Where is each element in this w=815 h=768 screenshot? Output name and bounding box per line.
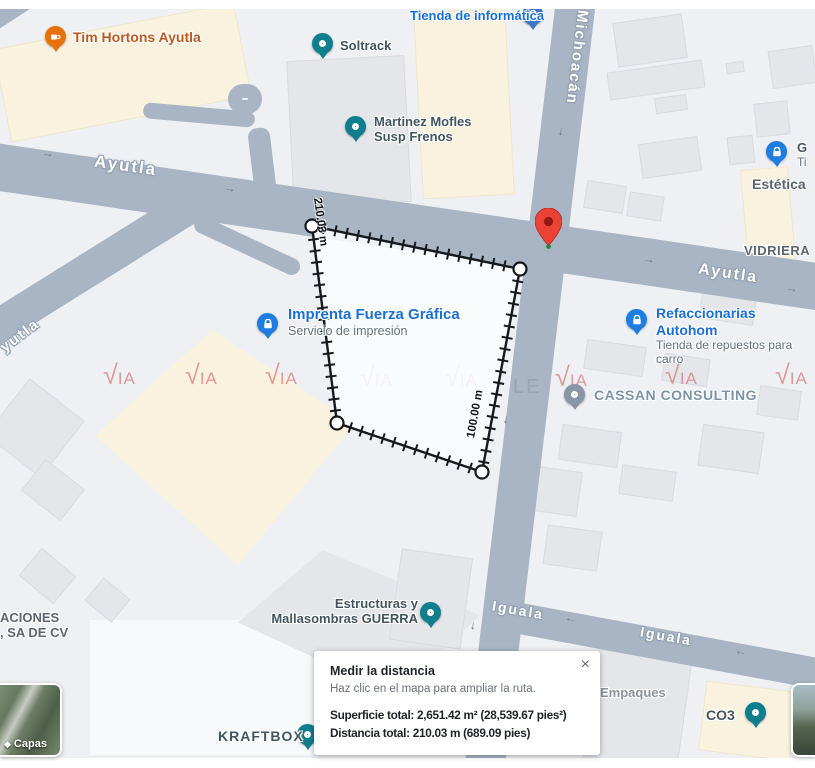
poi-label-soltrack[interactable]: Soltrack	[340, 38, 391, 53]
donut-icon	[319, 40, 326, 47]
building	[618, 464, 677, 501]
building	[583, 339, 647, 377]
poi-label-tim-hortons[interactable]: Tim Hortons Ayutla	[73, 29, 201, 46]
oneway-arrow-icon: ←	[734, 643, 748, 659]
dialog-area-total: Superficie total: 2,651.42 m² (28,539.67…	[330, 708, 586, 722]
oneway-arrow-icon: →	[642, 251, 656, 267]
building	[697, 424, 764, 474]
poi-pin-estructuras[interactable]	[420, 602, 441, 623]
dialog-hint: Haz clic en el mapa para ampliar la ruta…	[330, 683, 586, 695]
building	[753, 100, 790, 137]
poi-pin-tim-hortons cafe-icon[interactable]	[45, 26, 66, 47]
poi-label-cassan[interactable]: CASSAN CONSULTING	[594, 387, 757, 404]
lock-icon	[632, 315, 642, 325]
donut-icon	[571, 391, 578, 398]
close-icon[interactable]: ×	[581, 657, 590, 673]
measurement-vertex[interactable]	[476, 466, 489, 479]
poi-label-line: Imprenta Fuerza Gráfica	[288, 306, 460, 324]
poi-pin-martinez[interactable]	[345, 116, 366, 137]
building	[654, 94, 688, 114]
streetview-thumbnail[interactable]	[791, 683, 815, 757]
building	[727, 135, 756, 166]
building	[768, 45, 815, 89]
building	[542, 524, 602, 571]
poi-pin-estetica-lock[interactable]	[766, 141, 787, 162]
watermark: √IA	[103, 360, 136, 391]
oneway-arrow-icon: →	[223, 180, 237, 196]
poi-label-line: G	[797, 140, 807, 155]
poi-sublabel: Servicio de impresión	[288, 324, 460, 339]
poi-label-kraftbox[interactable]: KRAFTBOX	[218, 728, 304, 745]
poi-pin-imprenta-lock[interactable]	[257, 313, 278, 334]
donut-icon	[304, 731, 311, 738]
poi-label-empaques: Empaques	[600, 685, 666, 700]
building	[19, 548, 77, 605]
building	[583, 180, 627, 214]
poi-label-imprenta[interactable]: Imprenta Fuerza Gráfica Servicio de impr…	[288, 306, 460, 338]
poi-label-estetica: Estética	[752, 176, 806, 193]
dialog-title: Medir la distancia	[330, 664, 586, 678]
poi-label-line: Estructuras y	[268, 596, 418, 611]
layers-control[interactable]: ◆Capas	[0, 683, 62, 757]
building	[638, 136, 702, 179]
poi-label-line: Susp Frenos	[374, 129, 472, 144]
building	[84, 577, 130, 622]
donut-icon	[752, 709, 759, 716]
measure-distance-dialog: × Medir la distancia Haz clic en el mapa…	[314, 651, 600, 755]
donut-icon	[352, 123, 359, 130]
building	[626, 191, 664, 221]
poi-label-line: , SA DE CV	[0, 625, 68, 640]
watermark: √IA	[185, 360, 218, 391]
oneway-arrow-icon: →	[41, 145, 55, 161]
red-map-pin[interactable]	[535, 208, 562, 249]
poi-label-line: Ti	[797, 155, 807, 169]
building	[558, 424, 622, 468]
poi-label-refaccionarias[interactable]: Refaccionarias Autohom Tienda de repuest…	[656, 305, 815, 366]
poi-label-martinez[interactable]: Martinez Mofles Susp Frenos	[374, 114, 472, 145]
poi-label-line: Refaccionarias Autohom	[656, 305, 815, 338]
map-area-cream	[413, 8, 515, 200]
poi-label-co3[interactable]: CO3	[706, 707, 735, 724]
poi-label-estructuras[interactable]: Estructuras y Mallasombras GUERRA	[268, 596, 418, 627]
bottom-margin	[0, 758, 815, 768]
cafe-icon	[50, 32, 61, 42]
top-margin	[0, 0, 815, 9]
poi-pin-co3[interactable]	[745, 702, 766, 723]
building	[725, 61, 744, 74]
poi-label-line: Martinez Mofles	[374, 114, 472, 129]
lock-icon	[772, 147, 782, 157]
poi-label-line: Mallasombras GUERRA	[268, 611, 418, 626]
watermark-gray: LE	[513, 376, 541, 399]
poi-label-estetica-g[interactable]: G Ti	[797, 140, 807, 169]
poi-pin-soltrack[interactable]	[312, 33, 333, 54]
lock-icon	[263, 319, 273, 329]
poi-pin-cassan[interactable]	[564, 384, 585, 405]
layers-label: ◆Capas	[4, 738, 47, 750]
donut-icon	[427, 609, 434, 616]
measurement-label-right: 100.00 m	[465, 389, 485, 439]
watermark: √IA	[360, 362, 393, 393]
oneway-arrow-icon: ↓	[469, 618, 477, 633]
oneway-arrow-icon: →	[785, 280, 799, 296]
poi-label-line: ACIONES	[0, 610, 68, 625]
poi-pin-refaccionarias-lock[interactable]	[626, 309, 647, 330]
layers-icon: ◆	[4, 739, 11, 749]
building	[612, 13, 688, 67]
screenshot-root: → → → → ↓ ↓ ↓ ← ← Ayutla Ayutla Michoacá…	[0, 0, 815, 768]
dialog-distance-total: Distancia total: 210.03 m (689.09 pies)	[330, 726, 586, 740]
poi-label-vidriera: VIDRIERA	[744, 243, 810, 258]
poi-sublabel: Tienda de repuestos para carro	[656, 338, 815, 366]
poi-label-aciones: ACIONES , SA DE CV	[0, 610, 68, 641]
poi-label-tienda-informatica[interactable]: Tienda de informática	[410, 8, 544, 23]
oneway-arrow-icon: ←	[564, 610, 578, 626]
watermark: √IA	[265, 360, 298, 391]
